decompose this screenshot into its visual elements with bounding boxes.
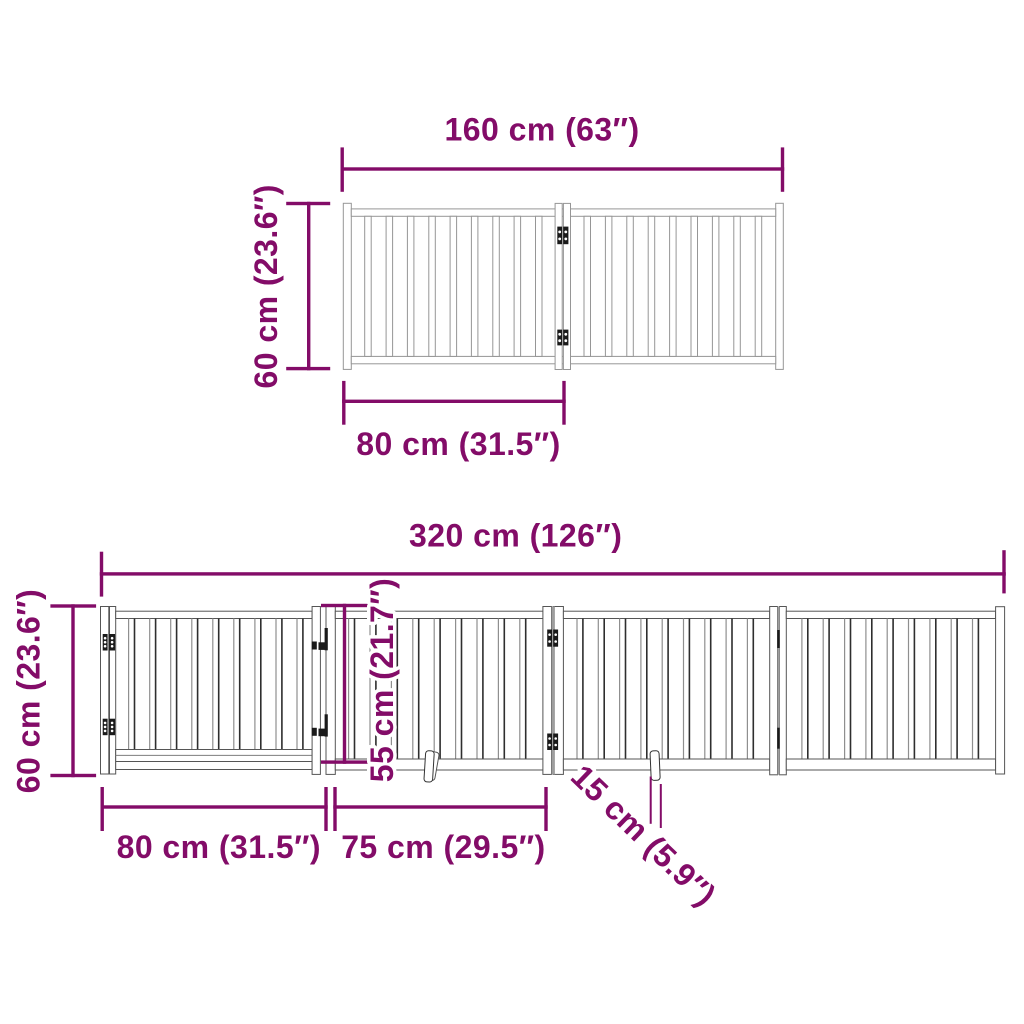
svg-text:55 cm (21.7″): 55 cm (21.7″) bbox=[364, 578, 400, 782]
svg-text:15 cm (5.9″): 15 cm (5.9″) bbox=[564, 758, 723, 913]
svg-text:60 cm (23.6″): 60 cm (23.6″) bbox=[11, 589, 47, 793]
svg-text:75 cm (29.5″): 75 cm (29.5″) bbox=[341, 829, 545, 865]
svg-text:60 cm (23.6″): 60 cm (23.6″) bbox=[248, 184, 284, 388]
svg-text:160 cm (63″): 160 cm (63″) bbox=[445, 111, 640, 147]
svg-text:80 cm (31.5″): 80 cm (31.5″) bbox=[117, 829, 321, 865]
svg-text:320 cm (126″): 320 cm (126″) bbox=[409, 518, 622, 554]
svg-text:80 cm (31.5″): 80 cm (31.5″) bbox=[356, 426, 560, 462]
